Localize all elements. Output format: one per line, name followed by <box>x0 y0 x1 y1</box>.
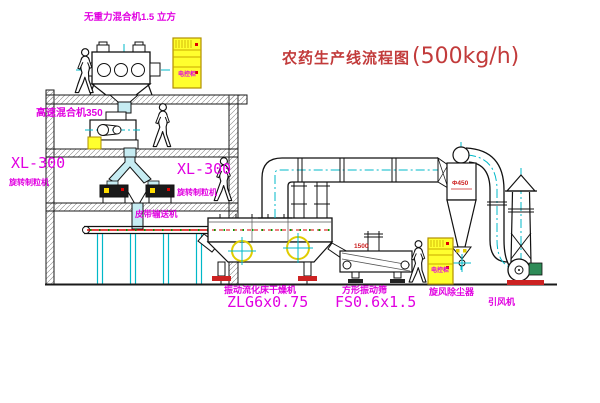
label-granulator-right-model: XL-300 <box>177 162 231 177</box>
title-capacity: (500kg/h) <box>412 44 519 69</box>
label-cabinet-2: 电控柜 <box>431 268 449 274</box>
label-granulator-right-name: 旋转制粒机 <box>177 189 217 197</box>
label-cabinet-1: 电控柜 <box>178 72 196 78</box>
person-figure-2 <box>153 104 171 147</box>
belt-conveyor <box>83 227 215 284</box>
dim-cyclone-diameter: Φ450 <box>452 181 468 188</box>
dim-sieve: 1500 <box>354 244 368 251</box>
label-granulator-left-name: 旋转制粒机 <box>9 179 49 187</box>
drawing-title: 农药生产线流程图 (500kg/h) <box>282 44 519 69</box>
induced-draft-fan <box>507 259 544 285</box>
label-gravity-mixer: 无重力混合机1.5 立方 <box>84 13 176 23</box>
label-granulator-left-model: XL-300 <box>11 156 65 171</box>
control-cabinet-1 <box>173 38 201 88</box>
rotary-granulator-left <box>100 181 128 203</box>
label-sieve-model: FS0.6x1.5 <box>335 295 416 310</box>
control-cabinet-2 <box>428 238 453 284</box>
label-cyclone: 旋风除尘器 <box>429 288 474 297</box>
label-dryer-model: ZLG6x0.75 <box>227 295 308 310</box>
label-high-speed-mixer: 高速混合机350 <box>36 109 103 119</box>
fluid-bed-dryer <box>198 214 332 284</box>
square-sieve <box>328 231 412 283</box>
diagram-canvas: 农药生产线流程图 (500kg/h) 无重力混合机1.5 立方 高速混合机350… <box>0 0 600 403</box>
label-fan: 引风机 <box>488 298 515 307</box>
rotary-granulator-right <box>146 181 174 203</box>
label-belt-conveyor: 皮带输送机 <box>135 210 178 219</box>
title-text: 农药生产线流程图 <box>282 47 410 68</box>
exhaust-duct <box>258 158 448 218</box>
